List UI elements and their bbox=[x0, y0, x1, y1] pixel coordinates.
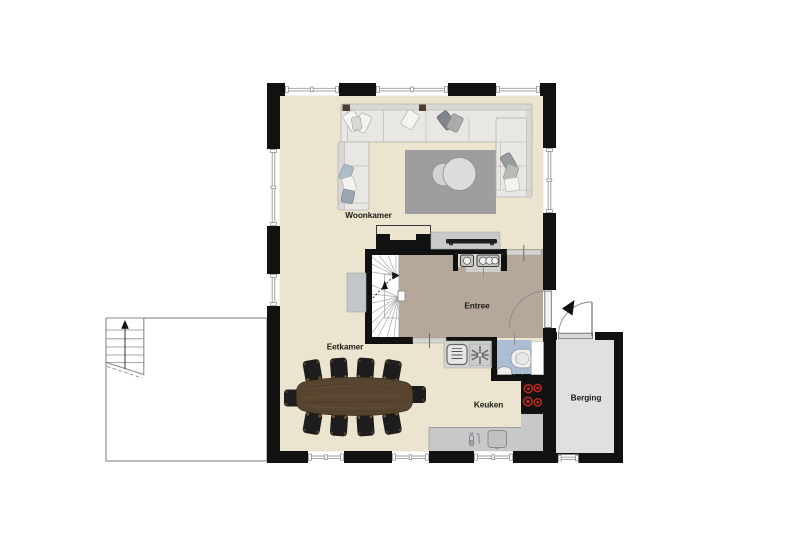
svg-text:Berging: Berging bbox=[571, 393, 602, 403]
svg-text:Woonkamer: Woonkamer bbox=[345, 210, 392, 220]
svg-text:Eetkamer: Eetkamer bbox=[327, 342, 364, 352]
svg-text:Entree: Entree bbox=[464, 301, 490, 311]
svg-text:Keuken: Keuken bbox=[474, 400, 503, 410]
